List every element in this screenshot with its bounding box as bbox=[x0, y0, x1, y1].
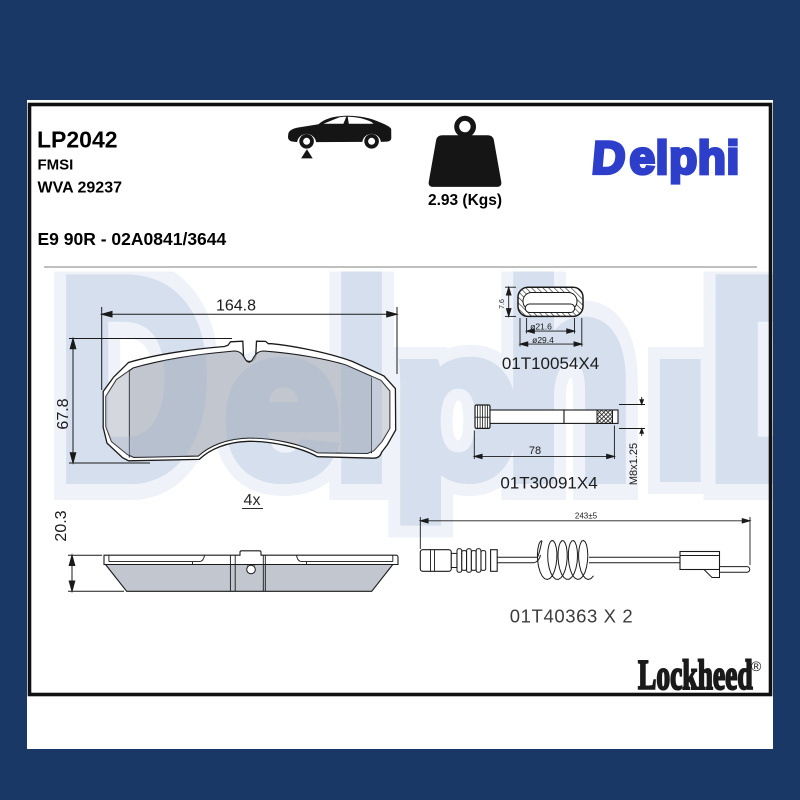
svg-text:Lockheed: Lockheed bbox=[638, 651, 753, 698]
svg-text:D: D bbox=[590, 132, 628, 184]
svg-text:67.8: 67.8 bbox=[55, 398, 72, 429]
svg-text:01T30091X4: 01T30091X4 bbox=[500, 474, 597, 493]
svg-text:20.3: 20.3 bbox=[53, 510, 70, 541]
svg-text:164.8: 164.8 bbox=[216, 298, 256, 315]
svg-text:ø21.6: ø21.6 bbox=[530, 322, 552, 332]
svg-text:ø29.4: ø29.4 bbox=[532, 335, 554, 345]
svg-text:01T40363 X 2: 01T40363 X 2 bbox=[510, 606, 633, 627]
svg-text:WVA 29237: WVA 29237 bbox=[38, 180, 123, 197]
svg-text:®: ® bbox=[751, 658, 762, 674]
svg-text:D: D bbox=[708, 221, 800, 536]
svg-text:01T10054X4: 01T10054X4 bbox=[502, 354, 599, 373]
svg-text:ı: ı bbox=[651, 286, 709, 521]
svg-text:LP2042: LP2042 bbox=[37, 127, 118, 153]
svg-text:2.93 (Kgs): 2.93 (Kgs) bbox=[428, 192, 502, 209]
svg-text:M8x1.25: M8x1.25 bbox=[628, 443, 640, 485]
svg-text:7.6: 7.6 bbox=[499, 299, 506, 309]
svg-text:4x: 4x bbox=[244, 492, 261, 509]
svg-text:E9 90R - 02A0841/3644: E9 90R - 02A0841/3644 bbox=[38, 229, 227, 249]
svg-text:243±5: 243±5 bbox=[575, 512, 598, 521]
svg-text:78: 78 bbox=[529, 445, 541, 457]
svg-text:FMSI: FMSI bbox=[38, 157, 74, 174]
svg-text:elphi: elphi bbox=[630, 132, 740, 184]
